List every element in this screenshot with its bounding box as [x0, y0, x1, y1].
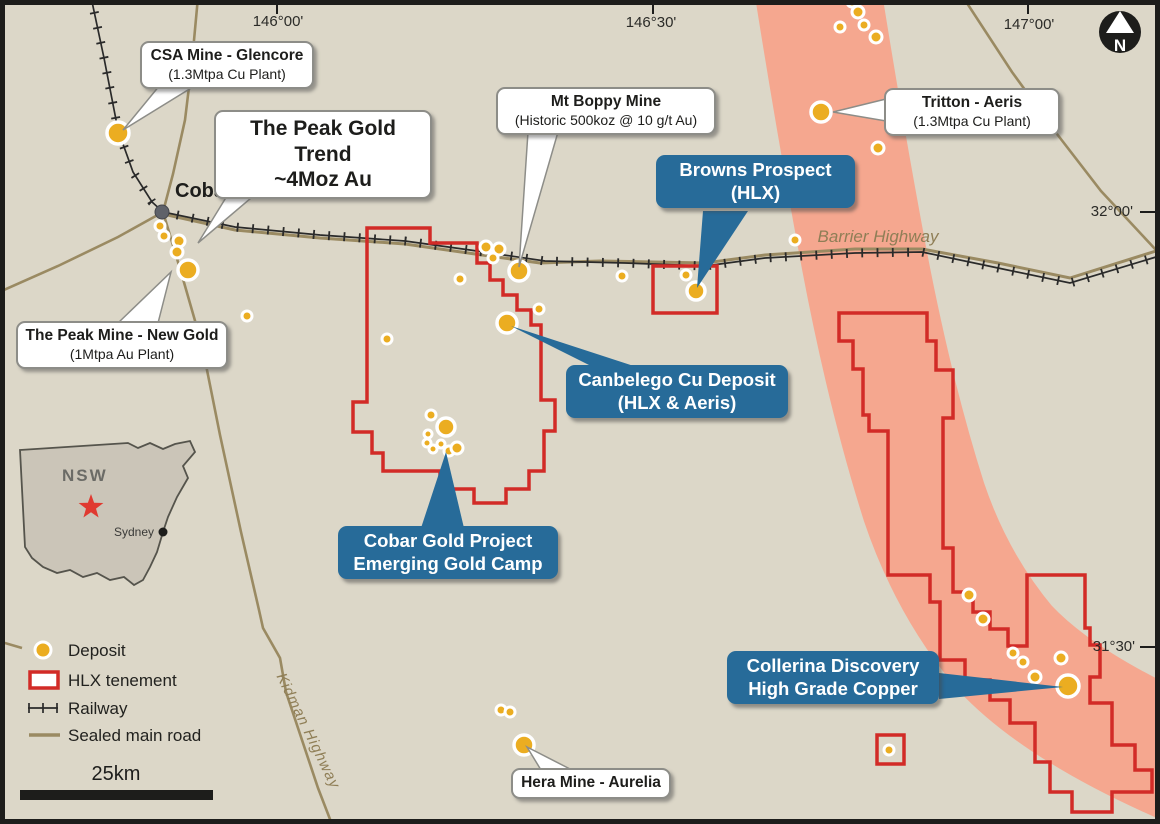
- callout-cobar-gold-line2: Emerging Gold Camp: [344, 553, 552, 576]
- callout-collerina-line1: Collerina Discovery: [733, 655, 933, 678]
- deposit-marker: [426, 410, 436, 420]
- barrier-highway-label: Barrier Highway: [818, 227, 939, 247]
- longitude-label-146-30: 146°30': [626, 14, 677, 31]
- scale-label: 25km: [92, 763, 141, 786]
- callout-csa-line1: CSA Mine - Glencore: [148, 47, 306, 66]
- deposit-marker: [242, 311, 252, 321]
- deposit-marker: [429, 445, 437, 453]
- callout-peak-gold-trend: The Peak Gold Trend ~4Moz Au: [214, 110, 432, 199]
- legend-label-deposit: Deposit: [68, 641, 126, 661]
- callout-collerina: Collerina Discovery High Grade Copper: [727, 651, 939, 704]
- deposit-marker: [687, 282, 705, 300]
- deposit-marker: [480, 241, 492, 253]
- deposit-marker: [1057, 675, 1079, 697]
- scale-bar: [20, 790, 213, 800]
- nsw-label: NSW: [62, 466, 108, 486]
- callout-peak-trend-line2: ~4Moz Au: [222, 167, 424, 193]
- deposit-marker: [451, 442, 463, 454]
- sydney-dot: [159, 528, 168, 537]
- callout-csa-line2: (1.3Mtpa Cu Plant): [148, 66, 306, 83]
- callout-peak-trend-line1: The Peak Gold Trend: [222, 116, 424, 167]
- latitude-label-32-00: 32°00': [1091, 203, 1133, 220]
- legend-label-tenement: HLX tenement: [68, 671, 177, 691]
- sydney-label: Sydney: [114, 525, 154, 539]
- deposit-marker: [455, 274, 465, 284]
- callout-browns-line1: Browns Prospect: [662, 159, 849, 182]
- callout-tritton-line2: (1.3Mtpa Cu Plant): [892, 113, 1052, 130]
- deposit-marker: [884, 745, 894, 755]
- deposit-marker: [178, 260, 198, 280]
- cobar-region-map: N 146°00' 146°30' 147°: [0, 0, 1160, 824]
- callout-boppy-line1: Mt Boppy Mine: [504, 93, 708, 112]
- longitude-label-147-00: 147°00': [1004, 16, 1055, 33]
- deposit-marker: [790, 235, 800, 245]
- longitude-label-146-00: 146°00': [253, 13, 304, 30]
- deposit-marker: [1029, 671, 1041, 683]
- latitude-label-31-30: 31°30': [1093, 638, 1135, 655]
- callout-csa-mine: CSA Mine - Glencore (1.3Mtpa Cu Plant): [140, 41, 314, 89]
- callout-hera-mine: Hera Mine - Aurelia: [511, 768, 671, 799]
- deposit-marker: [437, 418, 455, 436]
- callout-cobar-gold-project: Cobar Gold Project Emerging Gold Camp: [338, 526, 558, 579]
- deposit-marker: [159, 231, 169, 241]
- callout-peak-mine: The Peak Mine - New Gold (1Mtpa Au Plant…: [16, 321, 228, 369]
- callout-canbelego: Canbelego Cu Deposit (HLX & Aeris): [566, 365, 788, 418]
- callout-peak-mine-line1: The Peak Mine - New Gold: [24, 327, 220, 346]
- deposit-marker: [977, 613, 989, 625]
- deposit-marker: [424, 430, 432, 438]
- deposit-marker: [382, 334, 392, 344]
- deposit-marker: [859, 20, 869, 30]
- callout-canbelego-line2: (HLX & Aeris): [572, 392, 782, 415]
- deposit-marker: [870, 31, 882, 43]
- deposit-marker: [852, 6, 864, 18]
- deposit-marker: [1008, 648, 1018, 658]
- deposit-marker: [171, 246, 183, 258]
- callout-boppy-line2: (Historic 500koz @ 10 g/t Au): [504, 112, 708, 129]
- deposit-marker: [872, 142, 884, 154]
- deposit-marker: [107, 122, 129, 144]
- callout-hera-line1: Hera Mine - Aurelia: [519, 774, 663, 793]
- legend-label-railway: Railway: [68, 699, 128, 719]
- callout-browns-prospect: Browns Prospect (HLX): [656, 155, 855, 208]
- deposit-marker: [835, 22, 845, 32]
- deposit-marker: [505, 707, 515, 717]
- callout-peak-mine-line2: (1Mtpa Au Plant): [24, 346, 220, 363]
- cobar-town-dot: [155, 205, 169, 219]
- legend-label-road: Sealed main road: [68, 726, 201, 746]
- deposit-marker: [497, 313, 517, 333]
- callout-browns-line2: (HLX): [662, 182, 849, 205]
- callout-collerina-line2: High Grade Copper: [733, 678, 933, 701]
- deposit-marker: [488, 253, 498, 263]
- deposit-marker: [617, 271, 627, 281]
- legend-tenement-icon: [30, 672, 58, 688]
- north-arrow-letter: N: [1114, 36, 1126, 55]
- deposit-marker: [681, 270, 691, 280]
- deposit-marker: [155, 221, 165, 231]
- deposit-marker: [811, 102, 831, 122]
- callout-cobar-gold-line1: Cobar Gold Project: [344, 530, 552, 553]
- callout-canbelego-line1: Canbelego Cu Deposit: [572, 369, 782, 392]
- callout-mt-boppy: Mt Boppy Mine (Historic 500koz @ 10 g/t …: [496, 87, 716, 135]
- deposit-marker: [534, 304, 544, 314]
- callout-tritton: Tritton - Aeris (1.3Mtpa Cu Plant): [884, 88, 1060, 136]
- deposit-marker: [437, 440, 445, 448]
- deposit-marker: [1055, 652, 1067, 664]
- callout-tritton-line1: Tritton - Aeris: [892, 94, 1052, 113]
- deposit-marker: [963, 589, 975, 601]
- deposit-marker: [1018, 657, 1028, 667]
- legend-deposit-icon: [35, 642, 51, 658]
